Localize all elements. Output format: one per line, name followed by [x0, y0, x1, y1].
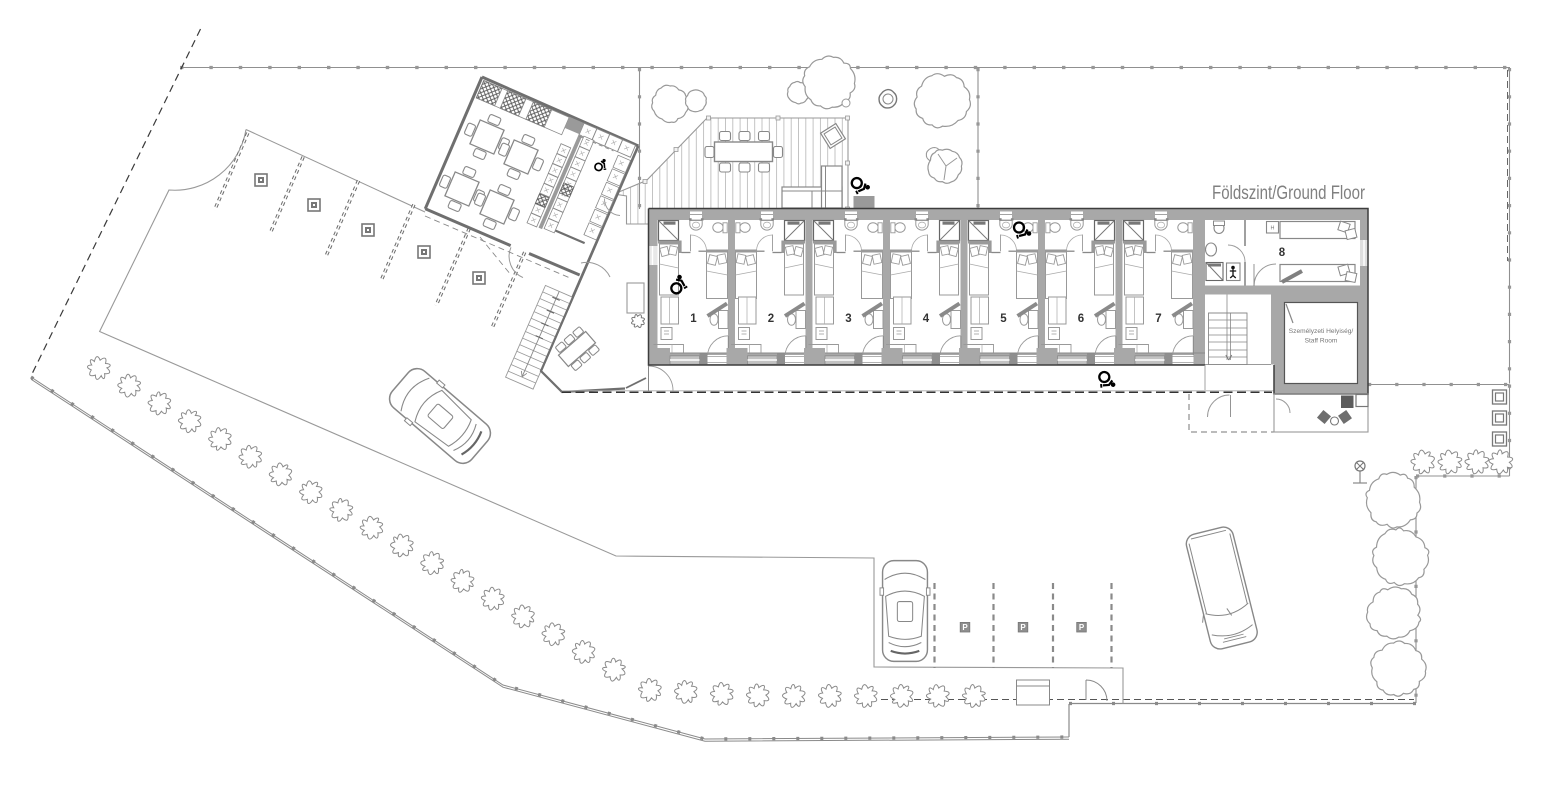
svg-text:Földszint/Ground Floor: Földszint/Ground Floor: [1212, 182, 1365, 204]
svg-text:8: 8: [1279, 247, 1286, 259]
svg-text:Személyzeti Helyiség/: Személyzeti Helyiség/: [1289, 328, 1354, 335]
svg-text:3: 3: [845, 313, 851, 325]
svg-text:2: 2: [768, 313, 774, 325]
svg-text:P: P: [1079, 623, 1085, 632]
svg-text:1: 1: [690, 313, 697, 325]
svg-text:5: 5: [1000, 313, 1007, 325]
svg-text:4: 4: [923, 313, 930, 325]
svg-text:Staff Room: Staff Room: [1305, 338, 1338, 345]
svg-text:P: P: [1020, 623, 1026, 632]
svg-text:6: 6: [1078, 313, 1084, 325]
svg-text:P: P: [962, 623, 968, 632]
svg-text:7: 7: [1155, 313, 1161, 325]
svg-text:H: H: [1271, 226, 1275, 232]
